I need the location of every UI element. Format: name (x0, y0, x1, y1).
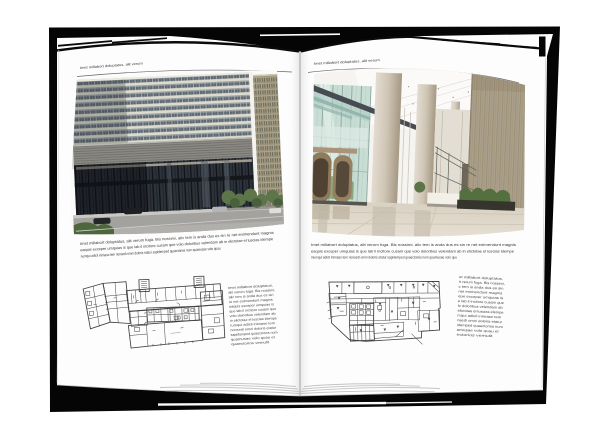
svg-text:inumqui adicil inimaso tem non: inumqui adicil inimaso tem nonsedi omni … (311, 256, 457, 260)
svg-text:Imet millabort doluptatus, ali: Imet millabort doluptatus, alit verum fu… (311, 243, 516, 247)
svg-text:eaquis exceper umquias is que: eaquis exceper umquias is que lab il inc… (311, 249, 514, 253)
